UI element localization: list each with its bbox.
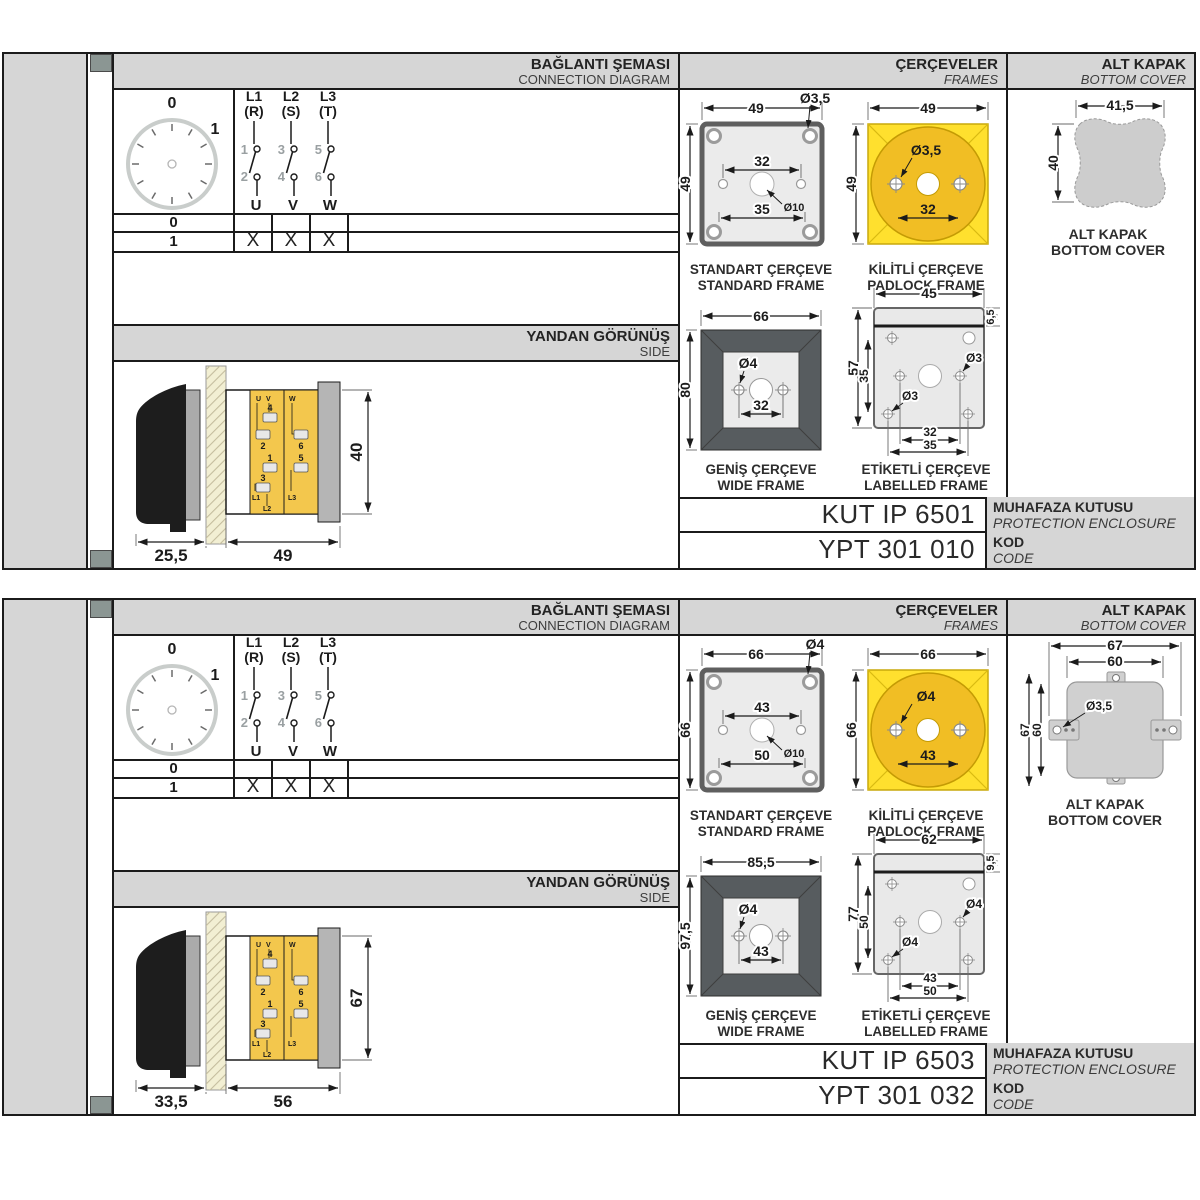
standard-frame-block: 49 Ø3,5 49 32 Ø10 35 STANDART ÇERÇEVE ST… — [682, 90, 840, 294]
table-bottom-line — [112, 251, 680, 253]
rotary-dial-diagram: 0 1 — [114, 636, 234, 758]
terminal-w: W — [289, 942, 296, 949]
table-row-0-label: 0 — [114, 761, 233, 775]
header-connection-title-tr: BAĞLANTI ŞEMASI — [531, 602, 670, 619]
labelled-frame-title-en: LABELLED FRAME — [864, 478, 988, 494]
table-mark — [235, 761, 271, 775]
terminal-v: V — [266, 942, 271, 949]
table-mark: X — [311, 779, 347, 795]
pole-l2: L2 (S) 3 4 V — [278, 634, 301, 760]
dim-inner-height: 50 — [857, 915, 871, 929]
dim-side-height: 40 — [347, 443, 366, 462]
pole-output-label: W — [323, 197, 338, 214]
header-connection-title-en: CONNECTION DIAGRAM — [518, 73, 670, 87]
header-bottom-cover-title-tr: ALT KAPAK — [1102, 56, 1186, 73]
labelled-frame-block: 62 9,5 77 50 Ø4 Ø4 43 50 ETİKETLİ ÇERÇEV… — [846, 830, 1006, 1040]
panel-hatch — [206, 912, 226, 1090]
terminal-4: 4 — [267, 949, 272, 959]
terminal-v: V — [266, 396, 271, 403]
header-frames-title-en: FRAMES — [944, 73, 998, 87]
code-divider-line — [985, 497, 987, 568]
contact-number-top: 5 — [315, 688, 322, 703]
dim-corner-hole: Ø4 — [806, 636, 825, 652]
pole-output-label: V — [288, 197, 298, 214]
side-view-header: YANDAN GÖRÜNÜŞ SIDE — [114, 324, 678, 362]
wide-frame-title-en: WIDE FRAME — [718, 1024, 805, 1040]
pole-line-label: L1 — [246, 634, 263, 650]
contact-number-bottom: 4 — [278, 169, 286, 184]
dim-hole: Ø4 — [917, 688, 936, 704]
table-mark: X — [235, 233, 271, 249]
dim-frame-width: 62 — [921, 831, 937, 847]
dim-side-handle: 25,5 — [154, 546, 187, 565]
switch-contacts-diagram: L1 (R) 1 2 U L2 (S) 3 4 V L3 (T) — [230, 634, 370, 758]
side-view-title-tr: YANDAN GÖRÜNÜŞ — [526, 874, 670, 891]
code-label-en: CODE — [993, 1096, 1191, 1112]
dim-hole: Ø4 — [739, 901, 758, 917]
bottom-cover-title-en: BOTTOM COVER — [1048, 812, 1162, 828]
header-connection-title-tr: BAĞLANTI ŞEMASI — [531, 56, 670, 73]
enclosure-label-en: PROTECTION ENCLOSURE — [993, 1061, 1191, 1077]
terminal-l1: L1 — [252, 1041, 260, 1048]
dim-span-1: 32 — [923, 425, 937, 439]
rotary-dial-diagram: 0 1 — [114, 90, 234, 212]
terminal-1: 1 — [267, 999, 272, 1009]
side-view-drawing: U V W 4 2 1 3 L1 L2 6 5 — [126, 906, 526, 1112]
code-divider-line — [985, 1043, 987, 1114]
dial-center — [168, 706, 176, 714]
pole-l1: L1 (R) 1 2 U — [241, 88, 264, 214]
pole-phase-label: (R) — [244, 649, 263, 665]
cover-column-line — [1006, 600, 1008, 1043]
dim-frame-height: 80 — [677, 382, 693, 398]
dim-hole-span: 43 — [753, 943, 769, 959]
product-code-label: KOD CODE — [993, 533, 1191, 566]
dim-label-strip: 6,5 — [985, 309, 997, 324]
dim-span-1: 43 — [923, 971, 937, 985]
contact-number-bottom: 4 — [278, 715, 286, 730]
terminal-3: 3 — [260, 473, 265, 483]
product-sidebar: 32A 3 Faz Aç-Kapa Şalter 32A 3 Phase On-… — [4, 600, 88, 1114]
dim-frame-width: 45 — [921, 285, 937, 301]
padlock-frame-block: 66 66 Ø4 43 KİLİTLİ ÇERÇEVE PADLOCK FRAM… — [846, 636, 1006, 840]
enclosure-code-value: KUT IP 6503 — [680, 1043, 983, 1077]
terminal-l3: L3 — [288, 495, 296, 502]
pole-phase-label: (R) — [244, 103, 263, 119]
dim-frame-width: 49 — [748, 100, 764, 116]
dial-position-1: 1 — [211, 667, 220, 684]
terminal-2: 2 — [260, 441, 265, 451]
dim-cover-hole: Ø3,5 — [1086, 699, 1112, 713]
pole-l3: L3 (T) 5 6 W — [315, 634, 338, 760]
header-frames: ÇERÇEVELER FRAMES — [680, 600, 1006, 634]
dim-side-handle: 33,5 — [154, 1092, 187, 1111]
contact-number-bottom: 2 — [241, 169, 248, 184]
wide-frame-title-tr: GENİŞ ÇERÇEVE — [705, 462, 816, 478]
dial-center — [168, 160, 176, 168]
dim-hole: Ø3,5 — [911, 142, 942, 158]
header-bottom-cover-title-en: BOTTOM COVER — [1081, 73, 1186, 87]
contact-number-bottom: 2 — [241, 715, 248, 730]
wide-frame-title-tr: GENİŞ ÇERÇEVE — [705, 1008, 816, 1024]
dim-hole-span: 32 — [754, 153, 770, 169]
standard-frame-block: 66 Ø4 66 43 Ø10 50 STANDART ÇERÇEVE STAN… — [682, 636, 840, 840]
pole-output-label: U — [251, 743, 262, 760]
dim-label-strip: 9,5 — [985, 855, 997, 870]
bottom-cover-title-tr: ALT KAPAK — [1066, 796, 1145, 812]
panel-hatch — [206, 366, 226, 544]
dial-ticks — [132, 124, 212, 204]
switch-handle — [136, 930, 186, 1078]
pole-phase-label: (T) — [319, 103, 337, 119]
table-mark: X — [235, 779, 271, 795]
table-mark: X — [273, 233, 309, 249]
bottom-cover-title-tr: ALT KAPAK — [1069, 226, 1148, 242]
dim-side-body: 49 — [274, 546, 293, 565]
dial-ring — [128, 120, 216, 208]
terminal-5: 5 — [298, 453, 303, 463]
pole-output-label: U — [251, 197, 262, 214]
wide-frame-block: 66 80 Ø4 32 GENİŞ ÇERÇEVE WIDE FRAME — [682, 302, 840, 494]
dim-cover-h-inner: 60 — [1030, 723, 1044, 737]
dim-hole-bottom: Ø3 — [902, 389, 918, 403]
terminal-1: 1 — [267, 453, 272, 463]
switch-contacts-diagram: L1 (R) 1 2 U L2 (S) 3 4 V L3 (T) — [230, 88, 370, 212]
side-view-header: YANDAN GÖRÜNÜŞ SIDE — [114, 870, 678, 908]
dim-side-height: 67 — [347, 989, 366, 1008]
bottom-cover-drawing: 67 60 67 60 Ø3,5 — [1015, 636, 1195, 794]
terminal-4: 4 — [267, 403, 272, 413]
terminal-6: 6 — [298, 441, 303, 451]
product-code-value: YPT 301 010 — [680, 531, 983, 568]
dim-frame-width: 49 — [920, 100, 936, 116]
index-marker-bottom — [90, 550, 112, 568]
pole-line-label: L1 — [246, 88, 263, 104]
side-view-drawing: U V W 4 2 1 3 L1 L2 6 5 — [126, 360, 526, 566]
dim-hole-span: 43 — [754, 699, 770, 715]
pole-phase-label: (T) — [319, 649, 337, 665]
end-plate — [318, 382, 340, 522]
cover-outline — [1075, 119, 1165, 207]
header-bottom-cover-title-tr: ALT KAPAK — [1102, 602, 1186, 619]
terminal-6: 6 — [298, 987, 303, 997]
frames-column-line — [678, 54, 680, 568]
terminal-l2: L2 — [263, 506, 271, 513]
dim-frame-width: 66 — [748, 646, 764, 662]
dial-position-0: 0 — [168, 95, 177, 112]
dim-cover-w-outer: 67 — [1107, 637, 1123, 653]
table-row-1-label: 1 — [114, 233, 233, 249]
labelled-frame-drawing: 62 9,5 77 50 Ø4 Ø4 43 50 — [846, 830, 1006, 1006]
side-view-title-en: SIDE — [640, 891, 670, 905]
dial-ticks — [132, 670, 212, 750]
wide-frame-block: 85,5 97,5 Ø4 43 GENİŞ ÇERÇEVE WIDE FRAME — [682, 848, 840, 1040]
dim-side-body: 56 — [274, 1092, 293, 1111]
code-label-en: CODE — [993, 550, 1191, 566]
dim-corner-hole: Ø3,5 — [800, 90, 831, 106]
table-bottom-line — [112, 797, 680, 799]
product-sidebar-text: 10A 3 Faz Aç-Kapa Şalter 10A 3 Phase On-… — [0, 66, 6, 566]
dial-position-1: 1 — [211, 121, 220, 138]
dim-inner-height: 35 — [857, 369, 871, 383]
header-frames-title-en: FRAMES — [944, 619, 998, 633]
product-code-label: KOD CODE — [993, 1079, 1191, 1112]
labelled-frame-title-tr: ETİKETLİ ÇERÇEVE — [861, 462, 990, 478]
pole-line-label: L2 — [283, 634, 300, 650]
standard-frame-title-tr: STANDART ÇERÇEVE — [690, 262, 832, 278]
contact-number-bottom: 6 — [315, 169, 322, 184]
padlock-frame-title-tr: KİLİTLİ ÇERÇEVE — [869, 808, 984, 824]
index-marker-top — [90, 54, 112, 72]
product-sidebar-text: 32A 3 Faz Aç-Kapa Şalter 32A 3 Phase On-… — [0, 612, 6, 1112]
enclosure-code-label: MUHAFAZA KUTUSU PROTECTION ENCLOSURE — [993, 1045, 1191, 1077]
table-mark: X — [273, 779, 309, 795]
cover-column-line — [1006, 54, 1008, 497]
enclosure-label-en: PROTECTION ENCLOSURE — [993, 515, 1191, 531]
cover-body — [1067, 682, 1163, 778]
dim-frame-height: 66 — [843, 722, 859, 738]
enclosure-code-label: MUHAFAZA KUTUSU PROTECTION ENCLOSURE — [993, 499, 1191, 531]
dial-ring — [128, 666, 216, 754]
table-mark — [235, 215, 271, 229]
terminal-w: W — [289, 396, 296, 403]
dim-cover-width: 41,5 — [1106, 97, 1133, 113]
padlock-frame-drawing: 49 49 Ø3,5 32 — [846, 90, 1006, 260]
dim-frame-width: 66 — [920, 646, 936, 662]
dim-hole: Ø4 — [739, 355, 758, 371]
dim-frame-height: 49 — [677, 176, 693, 192]
table-mark — [273, 215, 309, 229]
dim-lower-span: 50 — [754, 747, 770, 763]
pole-output-label: V — [288, 743, 298, 760]
side-view-title-en: SIDE — [640, 345, 670, 359]
contact-number-top: 3 — [278, 142, 285, 157]
pole-l3: L3 (T) 5 6 W — [315, 88, 338, 214]
labelled-frame-block: 45 6,5 57 35 Ø3 Ø3 32 35 ETİKETLİ ÇERÇEV… — [846, 284, 1006, 494]
table-mark — [311, 761, 347, 775]
dim-center-hole: Ø10 — [784, 202, 805, 214]
frames-column-line — [678, 600, 680, 1114]
table-mark — [311, 215, 347, 229]
pole-phase-label: (S) — [282, 649, 301, 665]
index-marker-bottom — [90, 1096, 112, 1114]
enclosure-code-value: KUT IP 6501 — [680, 497, 983, 531]
terminal-5: 5 — [298, 999, 303, 1009]
dim-hole-span: 32 — [753, 397, 769, 413]
pole-line-label: L2 — [283, 88, 300, 104]
index-marker-top — [90, 600, 112, 618]
pole-l1: L1 (R) 1 2 U — [241, 634, 264, 760]
standard-frame-title-en: STANDARD FRAME — [698, 278, 825, 294]
padlock-frame-drawing: 66 66 Ø4 43 — [846, 636, 1006, 806]
switch-handle — [136, 384, 186, 532]
code-label-tr: KOD — [993, 1080, 1191, 1096]
dim-center-hole: Ø10 — [784, 748, 805, 760]
pole-output-label: W — [323, 743, 338, 760]
header-frames: ÇERÇEVELER FRAMES — [680, 54, 1006, 88]
dim-frame-height: 49 — [843, 176, 859, 192]
dim-cover-height: 40 — [1045, 155, 1061, 171]
standard-frame-drawing: 49 Ø3,5 49 32 Ø10 35 — [682, 90, 840, 260]
labelled-frame-title-tr: ETİKETLİ ÇERÇEVE — [861, 1008, 990, 1024]
dim-hole-span: 43 — [920, 747, 936, 763]
pole-l2: L2 (S) 3 4 V — [278, 88, 301, 214]
wide-frame-drawing: 85,5 97,5 Ø4 43 — [682, 848, 840, 1006]
table-row-1-label: 1 — [114, 779, 233, 795]
product-section: 32A 3 Faz Aç-Kapa Şalter 32A 3 Phase On-… — [2, 598, 1196, 1116]
dim-frame-height: 66 — [677, 722, 693, 738]
pole-line-label: L3 — [320, 634, 337, 650]
enclosure-label-tr: MUHAFAZA KUTUSU — [993, 1045, 1191, 1061]
pole-phase-label: (S) — [282, 103, 301, 119]
table-mark: X — [311, 233, 347, 249]
padlock-frame-title-tr: KİLİTLİ ÇERÇEVE — [869, 262, 984, 278]
header-bottom-cover-title-en: BOTTOM COVER — [1081, 619, 1186, 633]
product-sidebar: 10A 3 Faz Aç-Kapa Şalter 10A 3 Phase On-… — [4, 54, 88, 568]
header-connection-title-en: CONNECTION DIAGRAM — [518, 619, 670, 633]
contact-number-top: 1 — [241, 688, 248, 703]
header-bottom-cover: ALT KAPAK BOTTOM COVER — [1008, 600, 1194, 634]
terminal-u: U — [256, 942, 261, 949]
wide-frame-title-en: WIDE FRAME — [718, 478, 805, 494]
end-plate — [318, 928, 340, 1068]
dim-frame-width: 85,5 — [747, 854, 774, 870]
terminal-l3: L3 — [288, 1041, 296, 1048]
labelled-frame-drawing: 45 6,5 57 35 Ø3 Ø3 32 35 — [846, 284, 1006, 460]
product-section: 10A 3 Faz Aç-Kapa Şalter 10A 3 Phase On-… — [2, 52, 1196, 570]
pole-line-label: L3 — [320, 88, 337, 104]
terminal-u: U — [256, 396, 261, 403]
dim-span-2: 50 — [923, 984, 937, 998]
dim-cover-w-inner: 60 — [1107, 653, 1123, 669]
product-code-value: YPT 301 032 — [680, 1077, 983, 1114]
header-connection-diagram: BAĞLANTI ŞEMASI CONNECTION DIAGRAM — [114, 54, 678, 88]
bottom-cover-block-blob: 41,5 40 ALT KAPAK BOTTOM COVER — [1024, 94, 1192, 258]
bottom-cover-block-tabbed: 67 60 67 60 Ø3,5 ALT KAPAK BOTTOM COVER — [1016, 636, 1194, 828]
dim-lower-span: 35 — [754, 201, 770, 217]
enclosure-label-tr: MUHAFAZA KUTUSU — [993, 499, 1191, 515]
contact-number-top: 1 — [241, 142, 248, 157]
wide-frame-drawing: 66 80 Ø4 32 — [682, 302, 840, 460]
terminal-l2: L2 — [263, 1052, 271, 1059]
terminal-2: 2 — [260, 987, 265, 997]
bottom-cover-drawing: 41,5 40 — [1024, 94, 1192, 224]
labelled-frame-title-en: LABELLED FRAME — [864, 1024, 988, 1040]
header-frames-title-tr: ÇERÇEVELER — [895, 602, 998, 619]
dim-hole-top: Ø4 — [966, 897, 982, 911]
header-connection-diagram: BAĞLANTI ŞEMASI CONNECTION DIAGRAM — [114, 600, 678, 634]
code-label-tr: KOD — [993, 534, 1191, 550]
dim-span-2: 35 — [923, 438, 937, 452]
bottom-cover-title-en: BOTTOM COVER — [1051, 242, 1165, 258]
header-bottom-cover: ALT KAPAK BOTTOM COVER — [1008, 54, 1194, 88]
side-view-title-tr: YANDAN GÖRÜNÜŞ — [526, 328, 670, 345]
dim-hole-top: Ø3 — [966, 351, 982, 365]
header-frames-title-tr: ÇERÇEVELER — [895, 56, 998, 73]
dim-frame-height: 97,5 — [677, 922, 693, 949]
table-mark — [273, 761, 309, 775]
terminal-l1: L1 — [252, 495, 260, 502]
standard-frame-drawing: 66 Ø4 66 43 Ø10 50 — [682, 636, 840, 806]
contact-number-bottom: 6 — [315, 715, 322, 730]
dim-hole-bottom: Ø4 — [902, 935, 918, 949]
dim-hole-span: 32 — [920, 201, 936, 217]
contact-number-top: 5 — [315, 142, 322, 157]
standard-frame-title-en: STANDARD FRAME — [698, 824, 825, 840]
padlock-frame-block: 49 49 Ø3,5 32 KİLİTLİ ÇERÇEVE PADLOCK FR… — [846, 90, 1006, 294]
dial-position-0: 0 — [168, 641, 177, 658]
contact-number-top: 3 — [278, 688, 285, 703]
dim-frame-width: 66 — [753, 308, 769, 324]
terminal-3: 3 — [260, 1019, 265, 1029]
standard-frame-title-tr: STANDART ÇERÇEVE — [690, 808, 832, 824]
table-row-0-label: 0 — [114, 215, 233, 229]
